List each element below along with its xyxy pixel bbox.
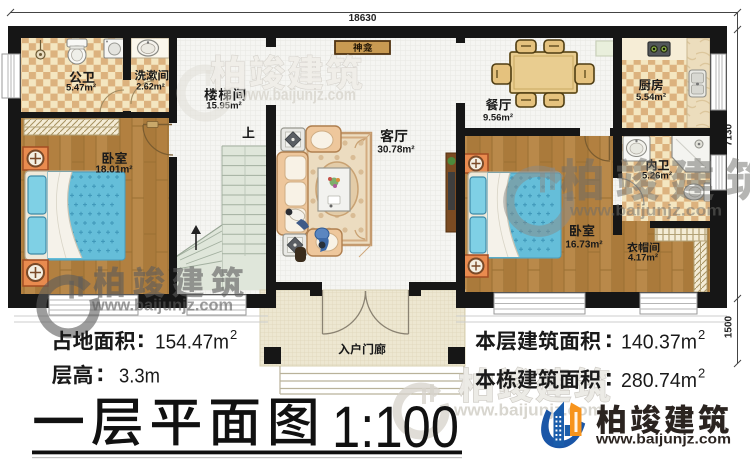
- svg-text:3.3m: 3.3m: [119, 365, 160, 388]
- svg-text:2: 2: [698, 327, 705, 342]
- svg-text:18630: 18630: [349, 13, 377, 24]
- svg-text:www.baijunjz.com: www.baijunjz.com: [236, 86, 356, 104]
- svg-text:16.73m²: 16.73m²: [565, 240, 603, 251]
- svg-text:www.baijunjz.com: www.baijunjz.com: [595, 432, 731, 447]
- svg-text:30.78m²: 30.78m²: [377, 145, 415, 156]
- svg-text:1500: 1500: [724, 315, 735, 338]
- svg-text:4.17m²: 4.17m²: [628, 253, 658, 264]
- svg-text:1:100: 1:100: [332, 395, 459, 460]
- svg-text:140.37m: 140.37m: [621, 331, 697, 354]
- svg-text:2.62m²: 2.62m²: [136, 82, 165, 92]
- svg-text:www.baijunjz.com: www.baijunjz.com: [569, 203, 722, 220]
- svg-text:2: 2: [230, 327, 237, 342]
- svg-text:154.47m: 154.47m: [155, 331, 229, 354]
- svg-text:18.01m²: 18.01m²: [95, 165, 133, 176]
- svg-text:9.56m²: 9.56m²: [483, 113, 513, 124]
- svg-text:280.74m: 280.74m: [621, 369, 697, 392]
- svg-text:2: 2: [698, 366, 705, 381]
- svg-text:5.47m²: 5.47m²: [66, 83, 96, 94]
- svg-text:www.baijunjz.com: www.baijunjz.com: [91, 297, 233, 315]
- svg-text:5.54m²: 5.54m²: [636, 92, 666, 103]
